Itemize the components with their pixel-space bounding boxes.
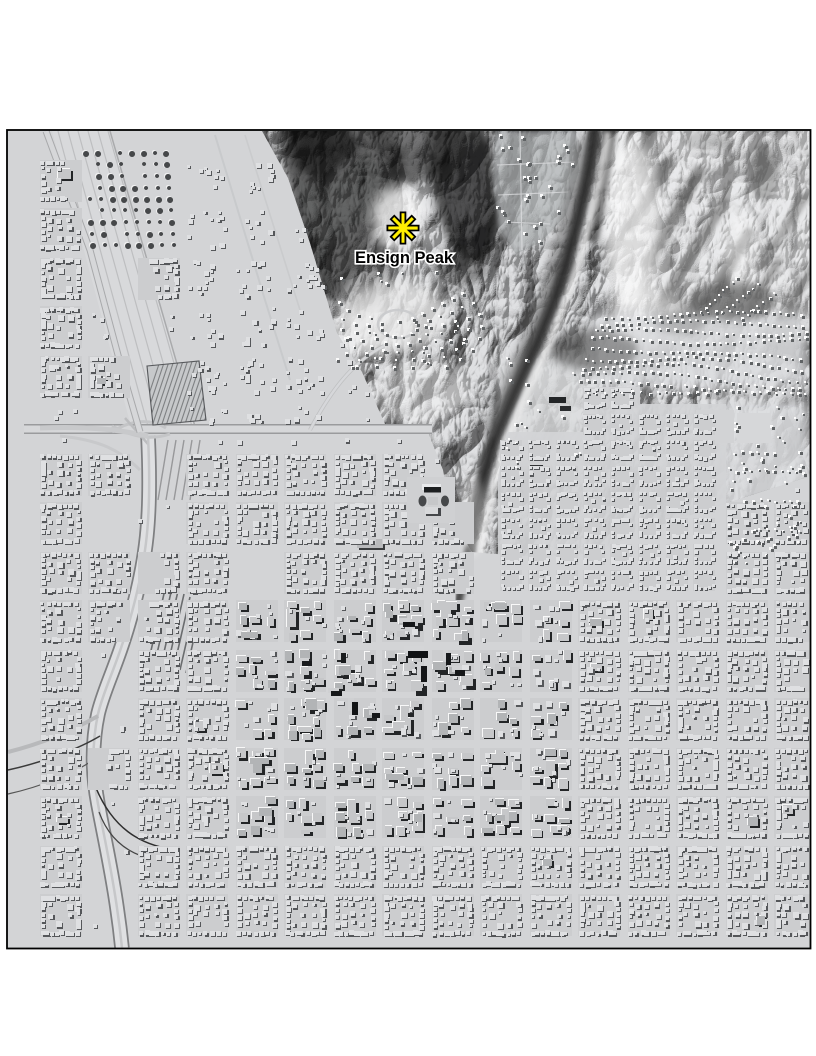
svg-text:Ensign Peak: Ensign Peak	[355, 249, 454, 267]
